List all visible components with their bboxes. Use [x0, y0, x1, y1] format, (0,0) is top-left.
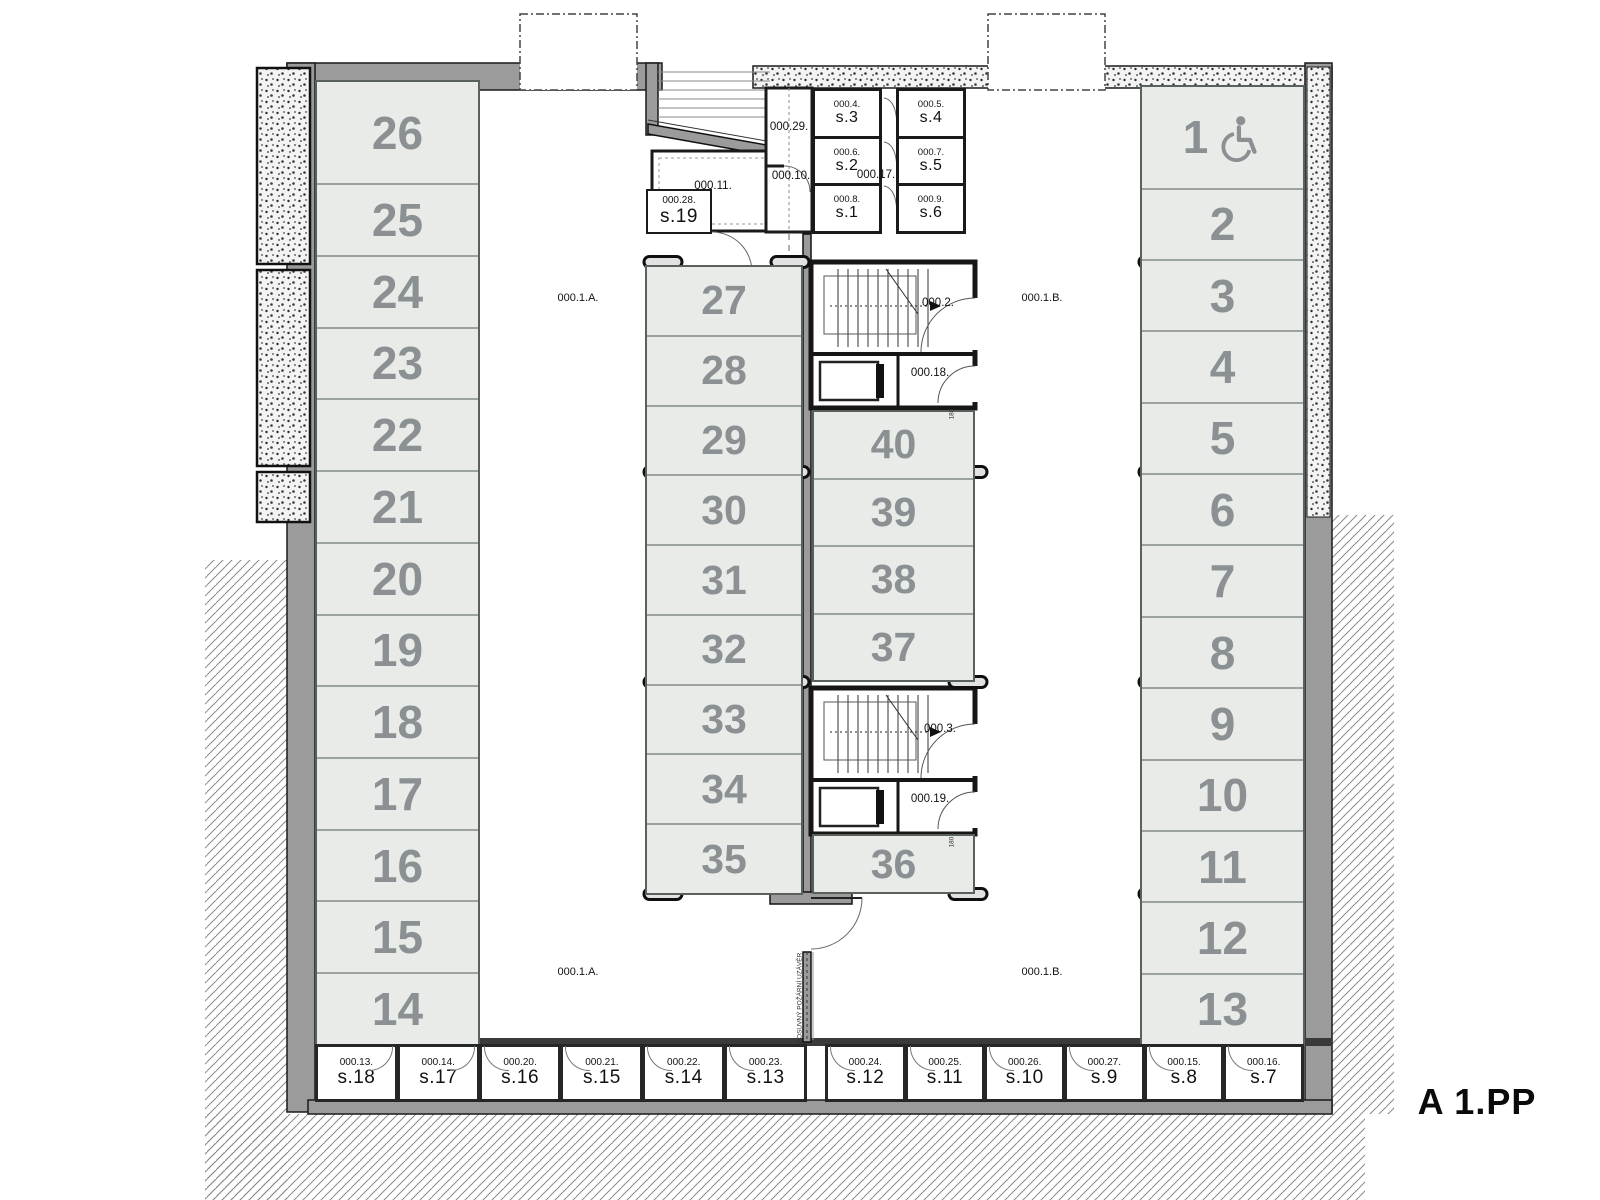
parking-space: 28: [647, 335, 801, 405]
storage-room-name: s.17: [419, 1068, 457, 1088]
storage-room: 000.23. s.13: [727, 1047, 804, 1099]
storage-room: 000.24. s.12: [828, 1047, 903, 1099]
space-number: 34: [701, 766, 747, 813]
space-number: 8: [1210, 626, 1236, 680]
space-number: 31: [701, 557, 747, 604]
space-number: 22: [372, 408, 423, 462]
fire-shutter-label: POSUVNÝ POŽÁRNÍ UZÁVĚR: [797, 953, 804, 1044]
storage-room-name: s.12: [846, 1068, 884, 1088]
parking-column-left: 26252423222120191817161514: [315, 80, 480, 1046]
parking-column-mid-left: 272829303132333435: [645, 265, 803, 895]
parking-space: 32: [647, 614, 801, 684]
space-number: 5: [1210, 411, 1236, 465]
wall-bottom: [308, 1100, 1332, 1114]
storage-room-name: s.15: [583, 1068, 621, 1088]
space-number: 33: [701, 696, 747, 743]
plan-title: A 1.PP: [1418, 1081, 1537, 1123]
storage-room-name: s.10: [1006, 1068, 1044, 1088]
space-number: 30: [701, 487, 747, 534]
gravel-panel-3: [257, 472, 310, 522]
parking-column-mid-right: 40393837: [812, 410, 975, 682]
storage-room: 000.25. s.11: [908, 1047, 983, 1099]
storage-room-name: s.16: [501, 1068, 539, 1088]
storage-room-name: s.11: [927, 1068, 964, 1088]
parking-space: 6: [1142, 473, 1303, 544]
space-number: 23: [372, 336, 423, 390]
zone-label-b-top: 000.1.B.: [1022, 292, 1063, 304]
parking-space: 7: [1142, 544, 1303, 615]
storage-room-name: s.6: [920, 205, 943, 222]
space-number: 20: [372, 552, 423, 606]
storage-room: 000.27. s.9: [1067, 1047, 1142, 1099]
parking-space: 23: [317, 327, 478, 399]
parking-space: 39: [814, 478, 973, 546]
room-label-000-29: 000.29.: [770, 121, 808, 133]
storage-room-s19: 000.28. s.19: [646, 189, 712, 234]
parking-space: 25: [317, 183, 478, 255]
parking-space: 29: [647, 405, 801, 475]
space-number: 17: [372, 767, 423, 821]
parking-space: 40: [814, 412, 973, 478]
storage-room-name: s.18: [337, 1068, 375, 1088]
parking-space: 2: [1142, 188, 1303, 259]
space-number: 38: [871, 556, 917, 603]
skylight-opening-right: [988, 14, 1105, 90]
parking-space: 9: [1142, 687, 1303, 758]
storage-room: 000.21. s.15: [563, 1047, 640, 1099]
space-number: 19: [372, 623, 423, 677]
parking-space: 34: [647, 753, 801, 823]
zone-label-a-top: 000.1.A.: [558, 292, 599, 304]
space-number: 3: [1210, 269, 1236, 323]
parking-space: 16: [317, 829, 478, 901]
space-number: 7: [1210, 554, 1236, 608]
space-number: 35: [701, 836, 747, 883]
space-number: 25: [372, 193, 423, 247]
parking-space: 4: [1142, 330, 1303, 401]
door-dimension-upper: 180: [949, 409, 956, 420]
space-number: 36: [871, 841, 917, 888]
wall-right-gravel: [1307, 67, 1330, 517]
parking-space: 37: [814, 613, 973, 681]
room-label-000-11: 000.11.: [694, 180, 732, 192]
storage-room-name: s.5: [920, 158, 943, 175]
floor-plan-stage: 26252423222120191817161514 1234567891011…: [0, 0, 1600, 1200]
parking-space: 18: [317, 685, 478, 757]
parking-space: 10: [1142, 759, 1303, 830]
space-number: 21: [372, 480, 423, 534]
space-number: 28: [701, 347, 747, 394]
parking-space: 33: [647, 684, 801, 754]
earth-hatch-bottom: [205, 1114, 1365, 1200]
room-label-000-10: 000.10.: [772, 170, 810, 182]
storage-cells-top-right: 000.5. s.4 000.7. s.5 000.9. s.6: [896, 88, 966, 234]
space-number: 6: [1210, 483, 1236, 537]
storage-room-name: s.8: [1171, 1068, 1198, 1088]
zone-label-a-bottom: 000.1.A.: [558, 966, 599, 978]
zone-label-b-bottom: 000.1.B.: [1022, 966, 1063, 978]
storage-room: 000.8. s.1: [815, 186, 879, 231]
parking-space: 19: [317, 614, 478, 686]
storage-room-name: s.1: [836, 205, 859, 222]
space-number: 1: [1183, 110, 1209, 164]
storage-room: 000.13. s.18: [318, 1047, 395, 1099]
parking-space: 5: [1142, 402, 1303, 473]
storage-row-right: 000.24. s.12 000.25. s.11 000.26. s.10 0…: [825, 1044, 1304, 1102]
room-label-stair-upper: 000.2.: [922, 297, 954, 309]
earth-hatch-left: [205, 560, 287, 1200]
storage-room: 000.9. s.6: [899, 186, 963, 231]
space-number: 29: [701, 417, 747, 464]
parking-space: 13: [1142, 973, 1303, 1044]
parking-space: 30: [647, 474, 801, 544]
storage-room: 000.7. s.5: [899, 139, 963, 184]
door-dimension-lower: 180: [949, 837, 956, 848]
parking-column-right: 12345678910111213: [1140, 85, 1305, 1046]
space-number: 24: [372, 265, 423, 319]
skylight-opening-left: [520, 14, 637, 90]
parking-space: 35: [647, 823, 801, 893]
gravel-panel-1: [257, 68, 310, 264]
storage-room: 000.14. s.17: [400, 1047, 477, 1099]
parking-space: 3: [1142, 259, 1303, 330]
room-label-stair-lower: 000.3.: [924, 723, 956, 735]
parking-space: 22: [317, 398, 478, 470]
storage-room: 000.26. s.10: [987, 1047, 1062, 1099]
parking-space: 31: [647, 544, 801, 614]
storage-room: 000.20. s.16: [482, 1047, 559, 1099]
storage-cells-top-left: 000.4. s.3 000.6. s.2 000.8. s.1: [812, 88, 882, 234]
parking-space: 15: [317, 900, 478, 972]
storage-room-name: s.13: [747, 1068, 785, 1088]
parking-space: 11: [1142, 830, 1303, 901]
storage-room-name: s.3: [836, 110, 859, 127]
space-number: 13: [1197, 982, 1248, 1036]
room-label-elevator-lobby-upper: 000.18.: [911, 367, 949, 379]
space-number: 9: [1210, 697, 1236, 751]
room-label-000-17: 000.17.: [857, 169, 895, 181]
space-number: 18: [372, 695, 423, 749]
stair-block-lower: [811, 688, 978, 834]
wheelchair-icon: [1216, 114, 1260, 162]
storage-room: 000.15. s.8: [1147, 1047, 1222, 1099]
room-label-elevator-lobby-lower: 000.19.: [911, 793, 949, 805]
storage-room-name: s.2: [836, 158, 859, 175]
parking-space: 14: [317, 972, 478, 1044]
storage-room-name: s.7: [1250, 1068, 1277, 1088]
space-number: 16: [372, 839, 423, 893]
storage-room-name: s.19: [660, 207, 698, 227]
storage-room: 000.4. s.3: [815, 91, 879, 136]
space-number: 2: [1210, 197, 1236, 251]
parking-space: 26: [317, 82, 478, 183]
space-number: 10: [1197, 768, 1248, 822]
storage-room: 000.16. s.7: [1226, 1047, 1301, 1099]
earth-hatch-right: [1332, 515, 1394, 1114]
parking-space: 27: [647, 267, 801, 335]
storage-row-left: 000.13. s.18 000.14. s.17 000.20. s.16 0…: [315, 1044, 807, 1102]
parking-space: 38: [814, 545, 973, 613]
parking-space: 8: [1142, 616, 1303, 687]
parking-space: 21: [317, 470, 478, 542]
space-number: 14: [372, 982, 423, 1036]
storage-room: 000.22. s.14: [645, 1047, 722, 1099]
space-number: 4: [1210, 340, 1236, 394]
storage-room: 000.5. s.4: [899, 91, 963, 136]
parking-space: 12: [1142, 901, 1303, 972]
space-number: 27: [701, 277, 747, 324]
storage-room-name: s.14: [665, 1068, 703, 1088]
parking-space: 20: [317, 542, 478, 614]
door-arc-center: [811, 898, 862, 949]
parking-space: 24: [317, 255, 478, 327]
space-number: 39: [871, 489, 917, 536]
gravel-panel-2: [257, 270, 310, 466]
space-number: 40: [871, 421, 917, 468]
space-number: 37: [871, 624, 917, 671]
stair-block-upper: [811, 262, 978, 408]
storage-room-name: s.9: [1091, 1068, 1118, 1088]
space-number: 12: [1197, 911, 1248, 965]
space-number: 15: [372, 910, 423, 964]
parking-space: 17: [317, 757, 478, 829]
space-number: 32: [701, 626, 747, 673]
space-number: 26: [372, 106, 423, 160]
storage-room-name: s.4: [920, 110, 943, 127]
space-number: 11: [1198, 840, 1247, 894]
